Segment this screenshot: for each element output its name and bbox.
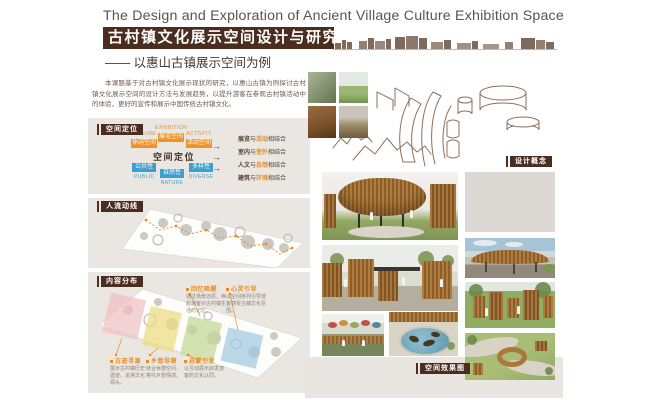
umbrella-green (350, 322, 359, 328)
render-wood-blocks-lawn (465, 282, 555, 328)
callout-desc: 以互动展示启发游客的文化认同。 (184, 366, 224, 380)
badge-bar (506, 156, 508, 167)
badge-label: 人流动线 (101, 201, 143, 212)
badge-space-positioning: 空间定位 (97, 124, 143, 135)
lotus-leaves (422, 339, 435, 348)
principle-line: 建筑与环境相结合 (238, 176, 286, 183)
canopy-post (513, 264, 515, 274)
page-subtitle: —— 以惠山古镇展示空间为例 (105, 52, 271, 71)
wood-wall (322, 263, 342, 297)
render-round-pavilion (322, 172, 458, 240)
callout-desc: 展示古村镇历史遗迹，追溯文化源头。 (110, 366, 148, 386)
badge-bar (97, 201, 99, 212)
callout-heritage-tracing: 古迹寻源 展示古村镇历史遗迹，追溯文化源头。 (110, 356, 148, 386)
callout-spiritual-guidance: 心灵引导 以空间序列引导游客感受古镇文化氛围。 (226, 284, 268, 314)
circular-wood-bench (497, 347, 527, 367)
person-silhouette (370, 212, 373, 220)
blank-gray-panel (465, 172, 555, 232)
person-silhouette (410, 210, 413, 218)
umbrella-blue (372, 322, 381, 328)
arrow-icon: → (212, 153, 221, 161)
diagram-center-label: 空间定位 (153, 150, 195, 163)
label-exhibition: EXHIBITION (153, 125, 189, 131)
person-silhouette (362, 340, 365, 346)
canopy-post (535, 262, 537, 272)
callout-title: 乡愁导憩 (146, 356, 184, 365)
bush (545, 367, 553, 375)
wood-fence (322, 336, 384, 344)
wood-wall (422, 261, 452, 299)
page-title-english: The Design and Exploration of Ancient Vi… (103, 8, 564, 24)
label-nature: NATURE (160, 180, 184, 186)
principle-line: 室内与室外相结合 (238, 150, 286, 157)
box-public: 公共性 (132, 163, 156, 172)
box-exhibition-space: 展览空间 (158, 133, 184, 142)
label-public: PUBLIC (134, 174, 154, 180)
person-silhouette (485, 308, 488, 316)
arrow-icon: → (212, 142, 221, 150)
wood-block (543, 296, 553, 318)
shrub (447, 342, 455, 350)
callout-title: 古迹寻源 (110, 356, 148, 365)
reference-photo-wood-interior (308, 106, 336, 138)
callout-title: 心灵引导 (226, 284, 268, 293)
person-silhouette (342, 340, 345, 346)
page-title-chinese-box: 古村镇文化展示空间设计与研究 (103, 27, 334, 49)
round-pond (399, 326, 451, 356)
principle-line: 展览与活动相结合 (238, 137, 286, 144)
box-nature: 自然性 (160, 169, 184, 178)
badge-label: 空间定位 (101, 124, 143, 135)
box-activity-space: 活动空间 (186, 139, 212, 148)
wood-wall (430, 184, 456, 228)
wood-slab (535, 341, 547, 351)
box-leisure-space: 休闲空间 (131, 139, 157, 148)
page-title-chinese: 古村镇文化展示空间设计与研究 (103, 27, 334, 49)
reference-photo-mountain-lake (339, 106, 368, 138)
reference-photo-green-architecture (308, 72, 336, 103)
poster-board: The Design and Exploration of Ancient Vi… (0, 0, 650, 400)
render-lotus-pond (389, 312, 458, 356)
render-aerial-circular-seating (465, 333, 555, 380)
umbrella-orange (339, 320, 348, 326)
person-silhouette (440, 279, 443, 287)
render-curved-canopy (465, 238, 555, 278)
badge-label: 内容分布 (101, 276, 143, 287)
person-silhouette (402, 277, 405, 285)
badge-content-distribution: 内容分布 (97, 276, 143, 287)
arrow-icon: → (212, 164, 221, 172)
curved-wood-canopy (471, 250, 549, 264)
wood-canopy (389, 312, 458, 322)
callout-memory-awakening: 回忆唤醒 通过场景还原，唤起游客对古村镇生活的记忆。 (186, 284, 226, 314)
badge-circulation: 人流动线 (97, 201, 143, 212)
render-wooden-walls (322, 245, 458, 311)
wood-wall (348, 259, 374, 297)
callout-desc: 结合休憩空间，寄托乡愁情感。 (146, 366, 184, 380)
wood-block (523, 290, 539, 320)
canopy-post (485, 262, 487, 272)
badge-space-renderings: 空间效果图 (416, 363, 470, 374)
design-principles-list: 展览与活动相结合 室内与室外相结合 人文与自然相结合 建筑与环境相结合 (238, 137, 286, 189)
person-silhouette (517, 306, 520, 314)
cloud (473, 240, 497, 246)
cloud (505, 242, 523, 247)
wood-block (473, 296, 485, 318)
wood-block (489, 292, 503, 320)
badge-bar (97, 124, 99, 135)
callout-title: 启蒙引发 (184, 356, 224, 365)
callout-title: 回忆唤醒 (186, 284, 226, 293)
label-activity: ACTIVITY (185, 131, 213, 137)
lotus-leaves (408, 334, 419, 343)
reference-photo-grass-roof-building (339, 72, 368, 103)
bush (467, 335, 477, 345)
umbrella-red (328, 322, 337, 328)
village-skyline-graphic (333, 33, 557, 51)
lotus-leaves (431, 331, 441, 337)
badge-label: 空间效果图 (420, 363, 470, 374)
intro-paragraph: 本课题基于对古村镇文化展示现状的研究，以惠山古镇为例探讨古村镇文化展示空间的设计… (92, 79, 306, 111)
label-diverse: DIVERSE (188, 174, 214, 180)
paved-path (348, 226, 424, 238)
umbrella-red (361, 320, 370, 326)
principle-line: 人文与自然相结合 (238, 163, 286, 170)
badge-design-concept: 设计概念 (506, 156, 552, 167)
person-silhouette (344, 279, 347, 287)
badge-bar (416, 363, 418, 374)
callout-desc: 以空间序列引导游客感受古镇文化氛围。 (226, 294, 268, 314)
wood-slab (473, 363, 483, 375)
wood-wall (324, 194, 336, 228)
wood-wall (378, 271, 398, 301)
box-diverse: 多样性 (189, 163, 213, 172)
badge-label: 设计概念 (510, 156, 552, 167)
shrub (543, 264, 555, 272)
callout-nostalgia-rest: 乡愁导憩 结合休憩空间，寄托乡愁情感。 (146, 356, 184, 380)
callout-enlightenment: 启蒙引发 以互动展示启发游客的文化认同。 (184, 356, 224, 380)
callout-desc: 通过场景还原，唤起游客对古村镇生活的记忆。 (186, 294, 226, 314)
render-umbrella-plaza (322, 314, 384, 356)
badge-bar (97, 276, 99, 287)
